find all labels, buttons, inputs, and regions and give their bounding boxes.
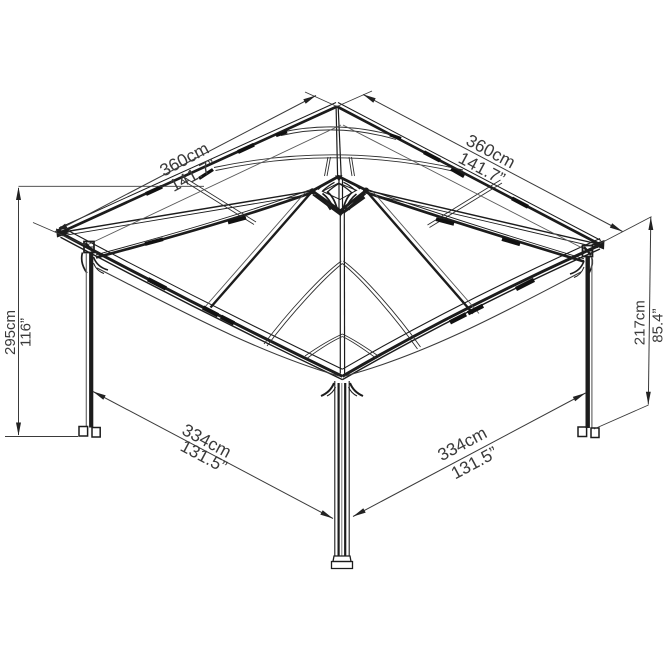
svg-text:116”: 116” bbox=[18, 318, 35, 347]
svg-text:295cm: 295cm bbox=[2, 310, 19, 355]
svg-text:217cm: 217cm bbox=[632, 300, 649, 345]
svg-text:85.4”: 85.4” bbox=[649, 308, 665, 342]
